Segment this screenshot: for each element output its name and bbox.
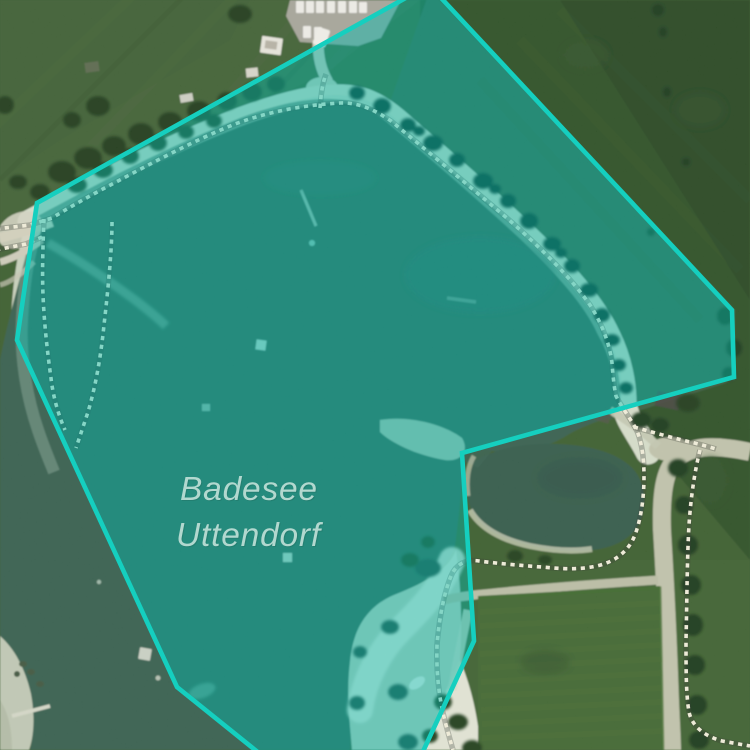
svg-text:Uttendorf: Uttendorf bbox=[176, 517, 324, 554]
svg-text:Badesee: Badesee bbox=[180, 471, 318, 508]
